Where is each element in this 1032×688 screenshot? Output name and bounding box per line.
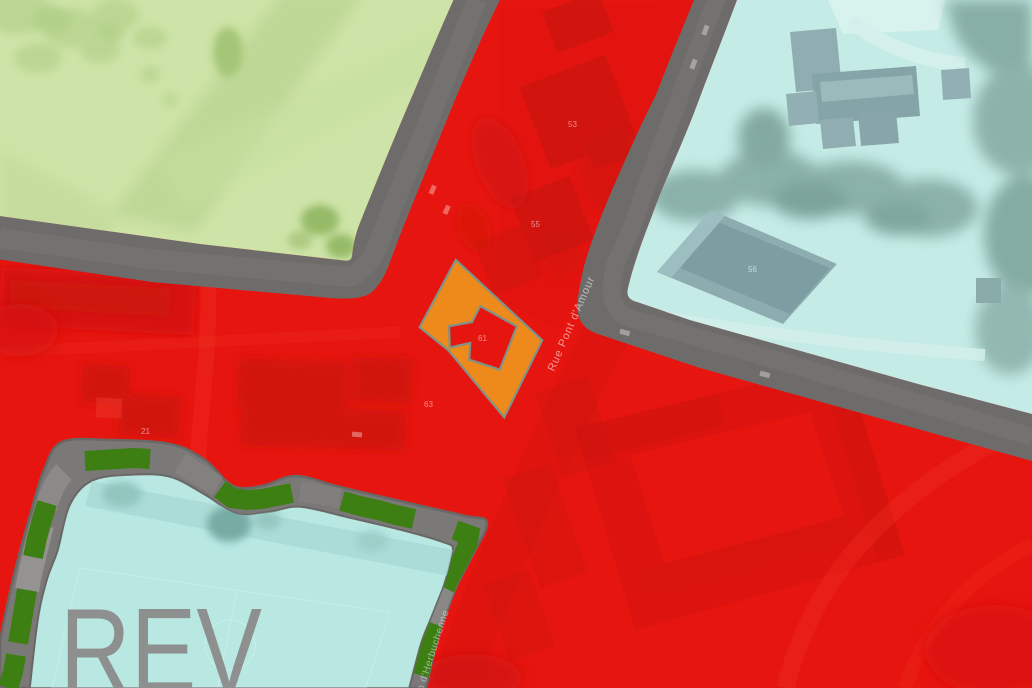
svg-text:63: 63 [424, 400, 433, 409]
svg-text:21: 21 [141, 427, 150, 436]
svg-text:53: 53 [568, 120, 577, 129]
svg-text:55: 55 [531, 220, 540, 229]
svg-text:REV: REV [60, 584, 262, 688]
svg-text:61: 61 [478, 334, 487, 343]
svg-text:56: 56 [748, 265, 757, 274]
